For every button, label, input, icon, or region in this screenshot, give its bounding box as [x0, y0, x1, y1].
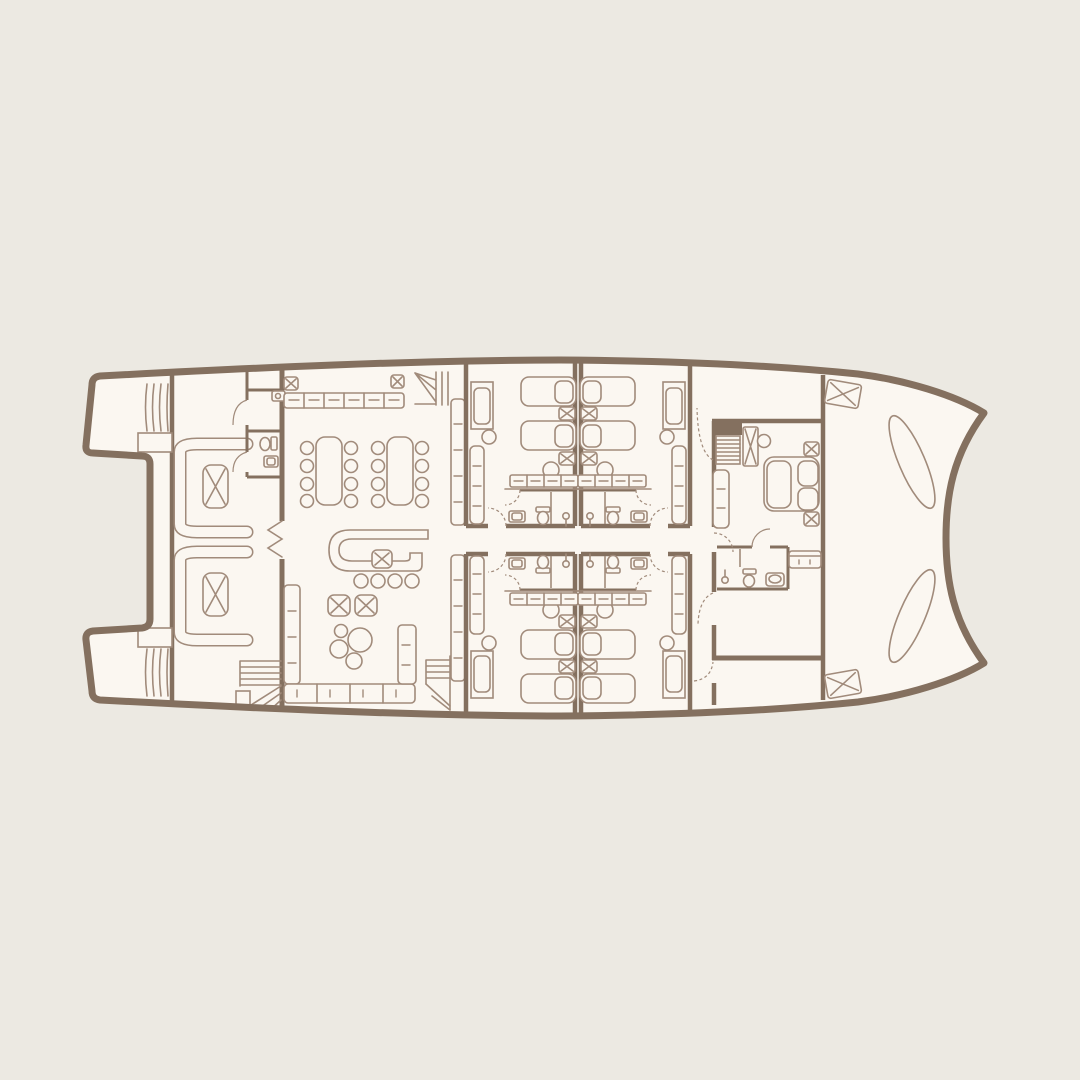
galley-counter	[284, 393, 404, 408]
bath-toilet	[743, 569, 756, 587]
chair	[416, 460, 429, 473]
stool	[758, 435, 771, 448]
chair	[372, 442, 385, 455]
chair	[345, 460, 358, 473]
wall-sofa-lower	[451, 555, 465, 681]
x-table	[355, 595, 377, 616]
sofa-right	[398, 625, 416, 684]
chair	[345, 478, 358, 491]
ceiling-hatch	[391, 375, 404, 388]
chair	[416, 442, 429, 455]
chair	[416, 495, 429, 508]
bar-stool	[388, 574, 402, 588]
chair	[372, 495, 385, 508]
deck-hatch-top	[824, 379, 862, 409]
x-table	[328, 595, 350, 616]
bath-sink	[766, 573, 784, 586]
pillow	[798, 488, 818, 510]
sofa-bottom	[284, 684, 415, 703]
chair	[372, 478, 385, 491]
dining-set	[301, 437, 358, 508]
chair	[416, 478, 429, 491]
boarding-platform-top	[138, 433, 172, 452]
chair	[301, 478, 314, 491]
x-nightstand	[804, 442, 819, 456]
x-table	[203, 465, 228, 508]
chair	[345, 495, 358, 508]
ladder-housing	[715, 423, 742, 435]
x-nightstand	[804, 512, 819, 526]
ceiling-hatch	[284, 377, 298, 390]
deck-hatch-bottom	[824, 669, 862, 699]
companionway-ladder	[716, 436, 740, 464]
dining-table	[316, 437, 342, 505]
floor-plan-canvas	[0, 0, 1080, 1080]
pillow	[798, 461, 818, 486]
x-wardrobe	[743, 427, 758, 466]
sofa-left	[284, 585, 300, 684]
dining-set	[372, 437, 429, 508]
bar-table	[372, 550, 392, 568]
x-table	[203, 573, 228, 616]
bar-stool	[354, 574, 368, 588]
dining-table	[387, 437, 413, 505]
bar-stool	[371, 574, 385, 588]
double-bed	[764, 457, 819, 511]
chair	[301, 495, 314, 508]
wc-toilet	[260, 437, 277, 451]
chair	[301, 442, 314, 455]
chair	[345, 442, 358, 455]
washbasin	[272, 391, 285, 401]
settee	[789, 551, 821, 568]
chair	[372, 460, 385, 473]
bench-seat	[713, 470, 729, 528]
bar-stool	[405, 574, 419, 588]
wc-sink	[264, 456, 278, 467]
chair	[301, 460, 314, 473]
wall-sofa-upper	[451, 399, 465, 525]
